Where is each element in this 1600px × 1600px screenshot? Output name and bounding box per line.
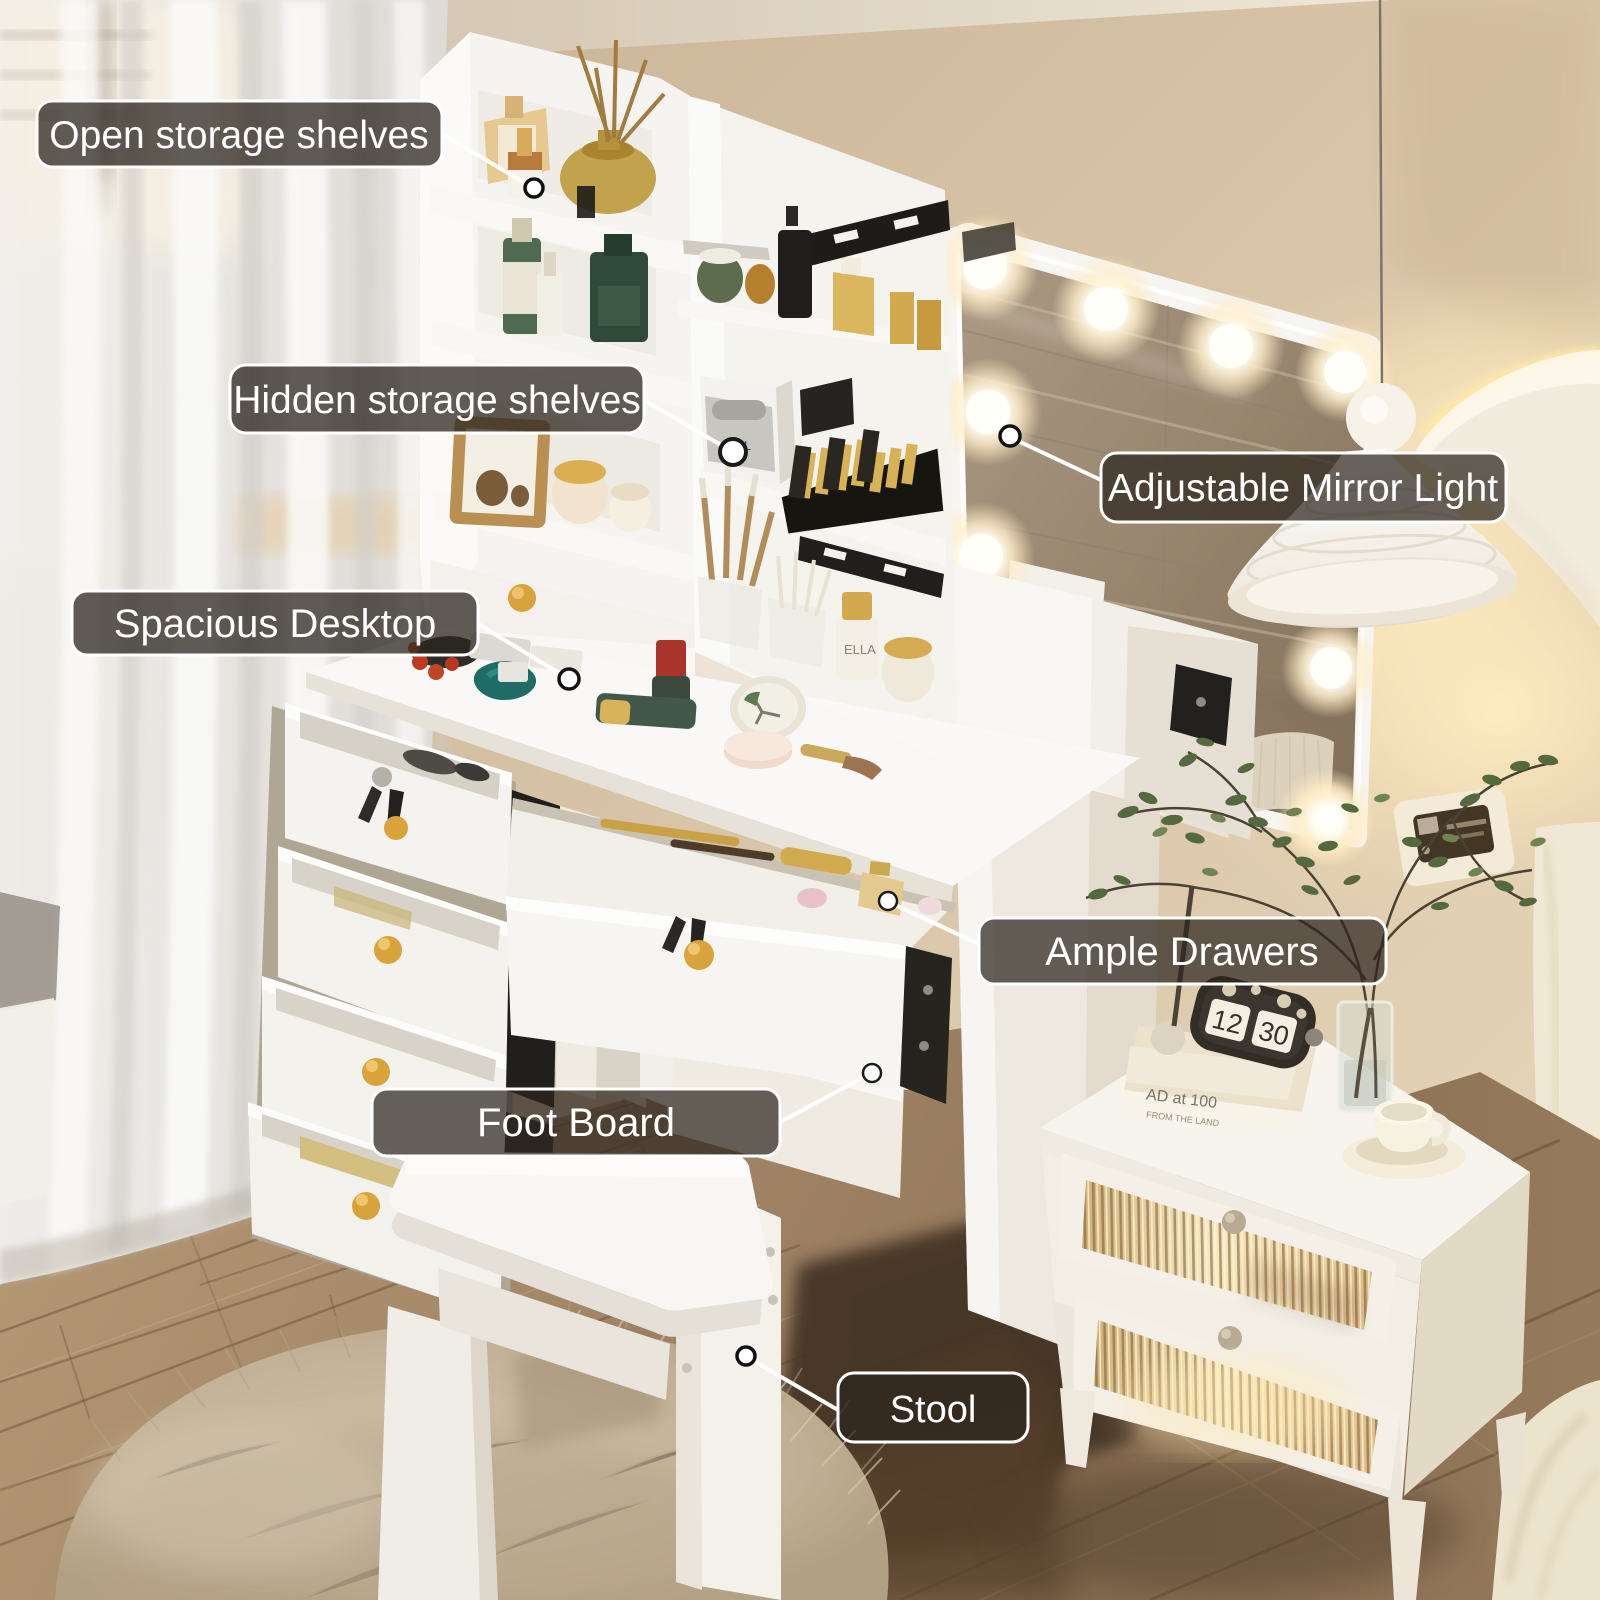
svg-text:Adjustable Mirror Light: Adjustable Mirror Light xyxy=(1108,467,1498,510)
svg-text:Foot Board: Foot Board xyxy=(477,1101,675,1145)
svg-text:ELLA: ELLA xyxy=(844,642,876,657)
svg-text:Ample Drawers: Ample Drawers xyxy=(1045,930,1318,974)
svg-text:Spacious Desktop: Spacious Desktop xyxy=(114,602,436,646)
svg-text:Hidden storage shelves: Hidden storage shelves xyxy=(233,379,641,422)
svg-text:Stool: Stool xyxy=(890,1389,977,1431)
svg-text:Open storage shelves: Open storage shelves xyxy=(49,114,428,157)
